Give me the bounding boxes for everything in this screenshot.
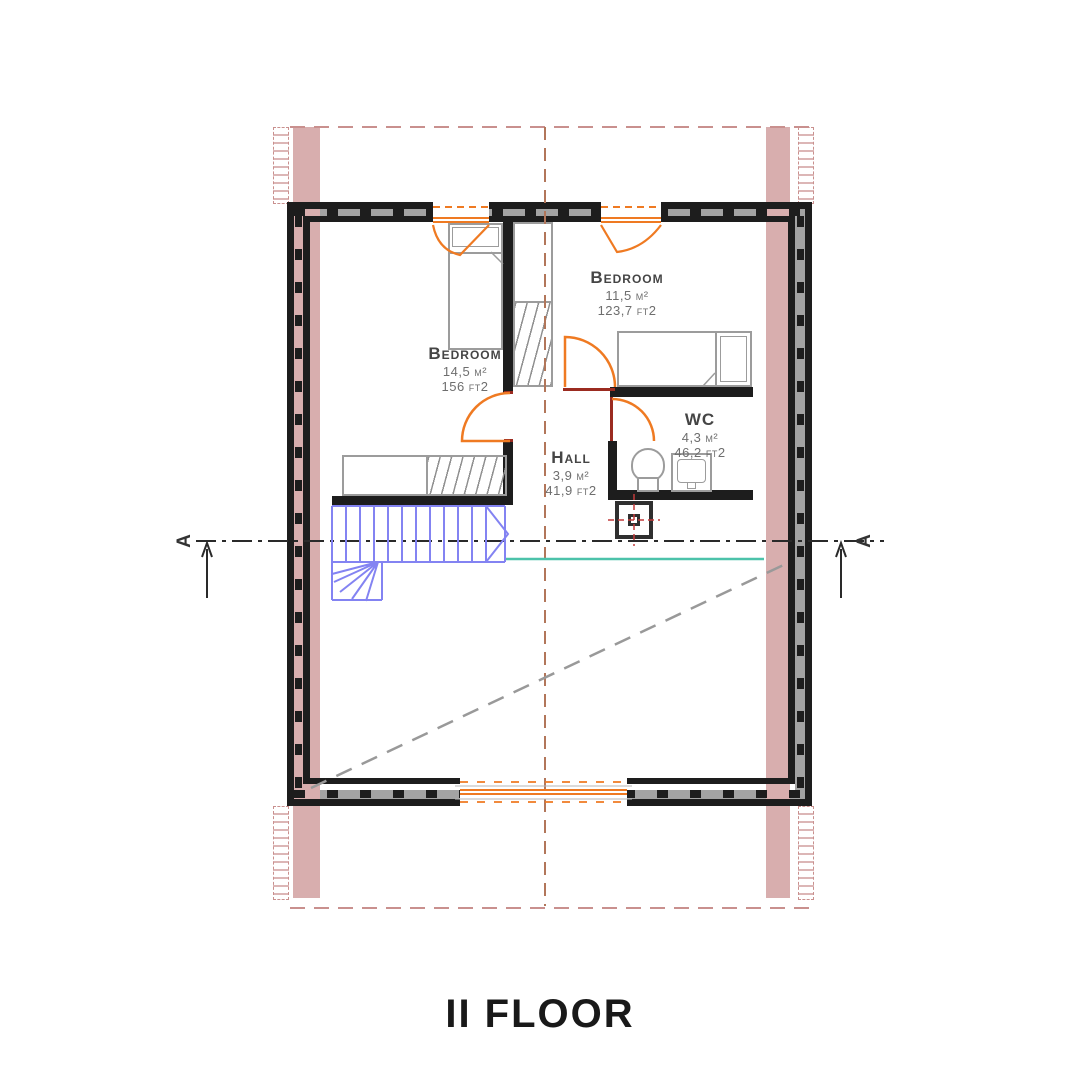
room-area-ft2: 41,9 ft2 — [509, 483, 633, 498]
room-label-wc: WC 4,3 м² 46,2 ft2 — [640, 410, 760, 460]
plan-linework — [0, 0, 1080, 1080]
room-area-m2: 4,3 м² — [640, 430, 760, 445]
stairs — [332, 506, 508, 601]
section-letter-right: A — [854, 530, 876, 552]
room-name: Bedroom — [383, 344, 547, 364]
window — [433, 207, 489, 255]
room-area-m2: 14,5 м² — [383, 364, 547, 379]
room-area-ft2: 46,2 ft2 — [640, 445, 760, 460]
window — [601, 207, 661, 252]
room-area-m2: 11,5 м² — [545, 288, 709, 303]
room-label-hall: Hall 3,9 м² 41,9 ft2 — [509, 448, 633, 498]
ceiling-slope-line — [311, 561, 792, 788]
room-name: WC — [640, 410, 760, 430]
room-label-bedroom-left: Bedroom 14,5 м² 156 ft2 — [383, 344, 547, 394]
room-area-ft2: 156 ft2 — [383, 379, 547, 394]
bed-fold — [491, 252, 503, 264]
section-letter-left: A — [174, 530, 196, 552]
room-label-bedroom-right: Bedroom 11,5 м² 123,7 ft2 — [545, 268, 709, 318]
room-area-ft2: 123,7 ft2 — [545, 303, 709, 318]
floor-title: II FLOOR — [340, 992, 740, 1037]
room-area-m2: 3,9 м² — [509, 468, 633, 483]
section-arrow — [836, 543, 846, 598]
room-name: Bedroom — [545, 268, 709, 288]
window — [455, 782, 632, 802]
chimney-axis — [608, 494, 660, 546]
floor-plan-canvas: Bedroom 14,5 м² 156 ft2 Bedroom 11,5 м² … — [0, 0, 1080, 1080]
room-name: Hall — [509, 448, 633, 468]
section-arrow — [202, 543, 212, 598]
bed-fold — [703, 373, 715, 386]
